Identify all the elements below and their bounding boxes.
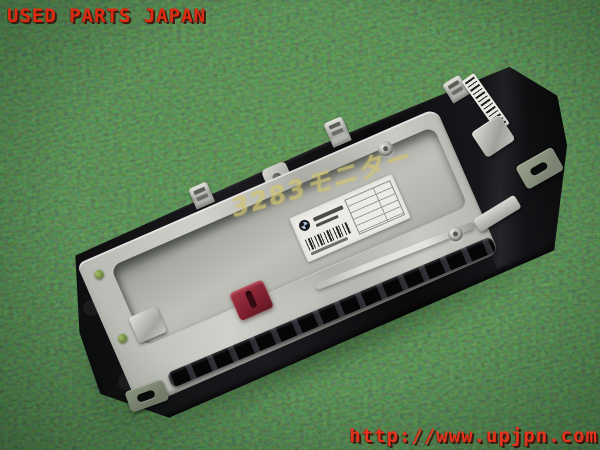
watermark-url: http://www.upjpn.com [349,425,598,447]
photo-vignette [0,0,600,450]
watermark-brand: USED PARTS JAPAN [7,5,206,27]
product-photo: 3283モニター USED PARTS JAPAN http://www.up [0,0,600,450]
